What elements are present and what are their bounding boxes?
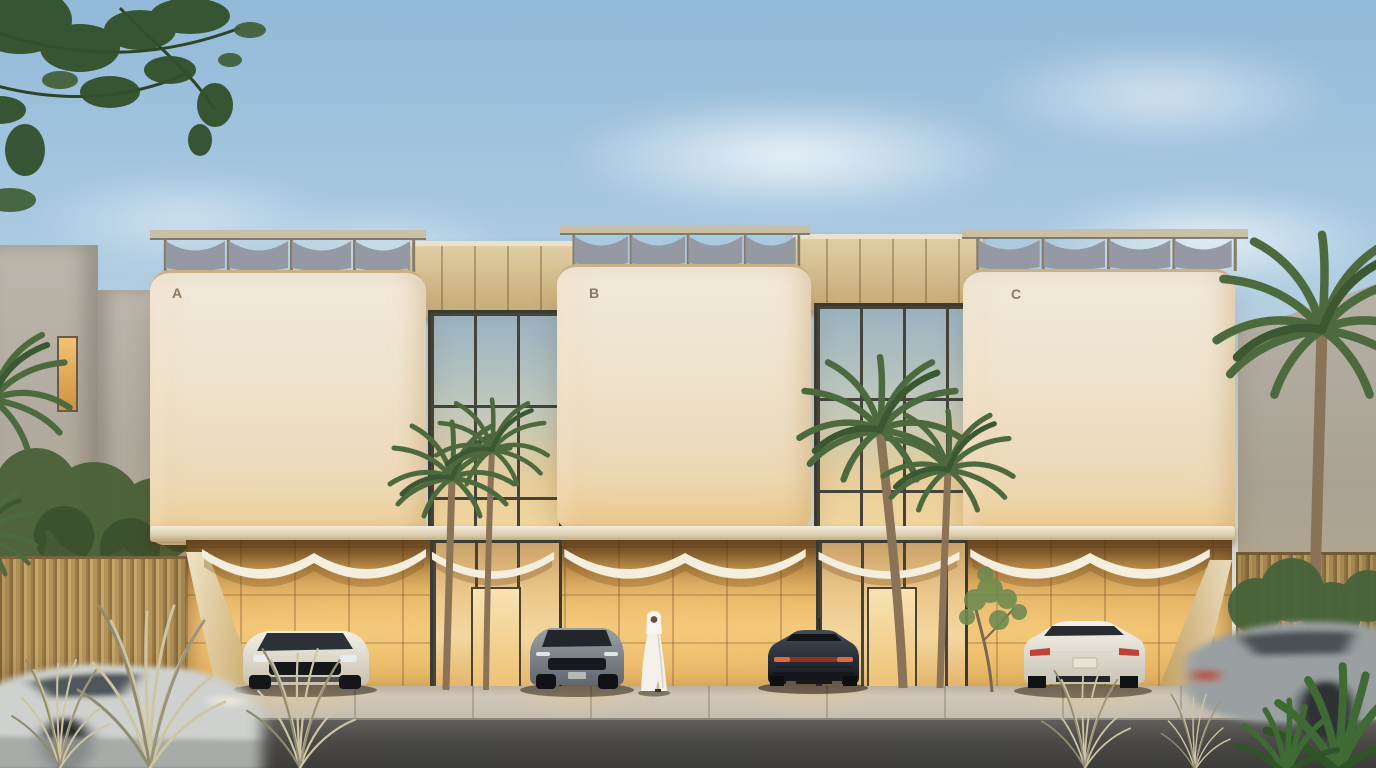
foreground-layer (0, 0, 1376, 768)
architectural-render-scene: A B C (0, 0, 1376, 768)
motion-blurred-car-right (1186, 622, 1376, 740)
